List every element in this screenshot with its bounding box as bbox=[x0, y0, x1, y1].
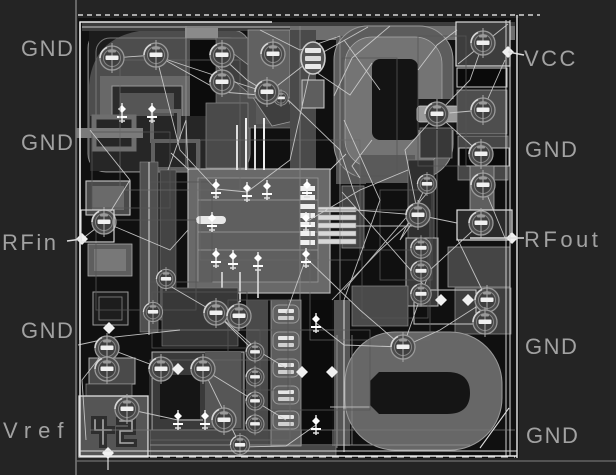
svg-text:GND: GND bbox=[21, 130, 74, 155]
svg-text:GND: GND bbox=[526, 423, 579, 448]
svg-text:RFout: RFout bbox=[524, 227, 601, 252]
svg-text:Vref: Vref bbox=[3, 418, 71, 443]
svg-text:GND: GND bbox=[525, 137, 578, 162]
svg-text:GND: GND bbox=[21, 318, 74, 343]
svg-text:VCC: VCC bbox=[524, 46, 578, 71]
svg-text:GND: GND bbox=[21, 36, 74, 61]
svg-text:RFin: RFin bbox=[2, 230, 58, 255]
svg-text:GND: GND bbox=[525, 334, 578, 359]
